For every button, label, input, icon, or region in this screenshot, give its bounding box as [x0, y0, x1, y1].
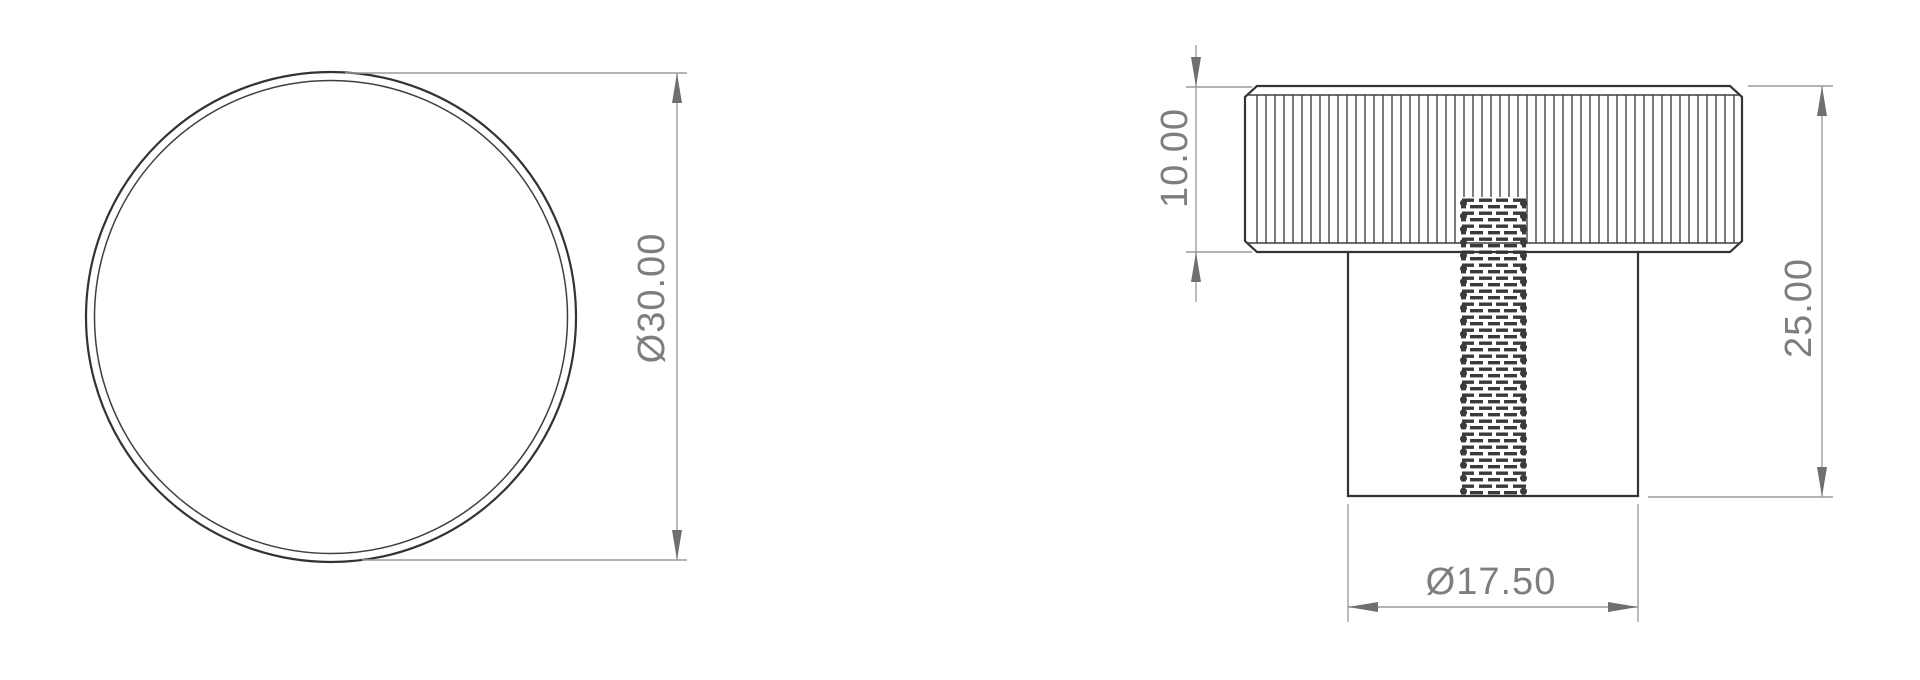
dimension-arrowhead	[1608, 602, 1638, 612]
dimension-arrowhead	[1348, 602, 1378, 612]
top-view: Ø30.00	[86, 72, 687, 562]
dimension-arrowhead	[672, 73, 682, 103]
knob-outer-circle	[86, 72, 576, 562]
body-diameter-dimension-17-5: Ø17.50	[1348, 504, 1638, 622]
diameter-dimension-30: Ø30.00	[345, 73, 687, 560]
front-view: 10.00 25.00 Ø17.50	[1154, 45, 1833, 622]
drawing-canvas: Ø30.00	[0, 0, 1920, 680]
dimension-arrowhead	[672, 530, 682, 560]
dimension-arrowhead	[1817, 86, 1827, 116]
head-height-dimension-10: 10.00	[1154, 45, 1252, 302]
dimension-arrowhead	[1191, 252, 1201, 282]
overall-height-dimension-label: 25.00	[1778, 258, 1820, 358]
technical-drawing: Ø30.00	[0, 0, 1920, 680]
dimension-arrowhead	[1817, 467, 1827, 497]
threaded-stud	[1461, 197, 1526, 496]
knob-inner-circle	[95, 81, 568, 554]
diameter-dimension-label: Ø30.00	[631, 233, 673, 364]
head-height-dimension-label: 10.00	[1154, 108, 1196, 208]
dimension-arrowhead	[1191, 57, 1201, 87]
body-diameter-dimension-label: Ø17.50	[1426, 561, 1557, 603]
stud-body	[1461, 197, 1526, 496]
